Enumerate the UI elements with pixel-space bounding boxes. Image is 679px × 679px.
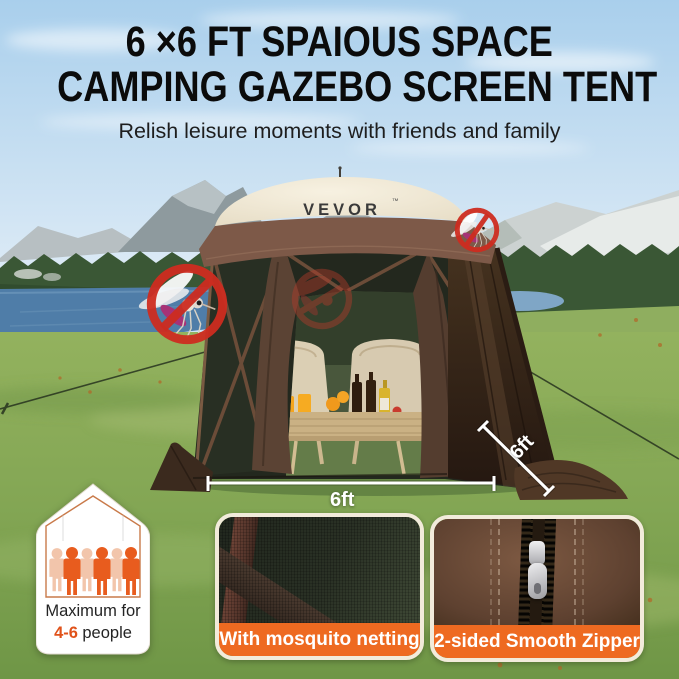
capacity-text: Maximum for 4-6people	[36, 600, 150, 645]
zipper-slider	[529, 541, 545, 565]
stitch-line	[498, 519, 500, 625]
feature-card-netting: With mosquito netting	[215, 513, 424, 660]
stitch-line	[582, 519, 584, 625]
zipper-photo	[434, 519, 640, 625]
page-title-line1: 6 ×6 FT SPAIOUS SPACE	[0, 20, 679, 65]
capacity-line1: Maximum for	[36, 600, 150, 622]
capacity-badge: Maximum for 4-6people	[36, 481, 150, 658]
width-dimension-label: 6ft	[330, 489, 354, 512]
page-subtitle: Relish leisure moments with friends and …	[0, 119, 679, 144]
mosquito-netting-photo	[219, 517, 420, 623]
header: 6 ×6 FT SPAIOUS SPACE CAMPING GAZEBO SCR…	[0, 20, 679, 144]
capacity-line2: 4-6people	[36, 622, 150, 644]
zipper-pull-hole	[534, 583, 541, 594]
capacity-suffix: people	[82, 624, 132, 642]
zipper-pull-tab	[528, 563, 547, 599]
netting-label: With mosquito netting	[219, 623, 420, 656]
zipper-label: 2-sided Smooth Zipper	[434, 625, 640, 658]
mesh-texture	[219, 517, 420, 623]
vevor-logo-text: VEVOR	[303, 201, 381, 219]
vevor-trademark: ™	[392, 198, 399, 205]
product-image: VEVOR ™ 6 ×6 FT SPAIOUS SPACE	[0, 0, 679, 679]
page-title-line2: CAMPING GAZEBO SCREEN TENT	[0, 65, 679, 110]
capacity-range: 4-6	[54, 624, 78, 642]
stitch-line	[490, 519, 492, 625]
stitch-line	[574, 519, 576, 625]
feature-card-zipper: 2-sided Smooth Zipper	[430, 515, 644, 662]
